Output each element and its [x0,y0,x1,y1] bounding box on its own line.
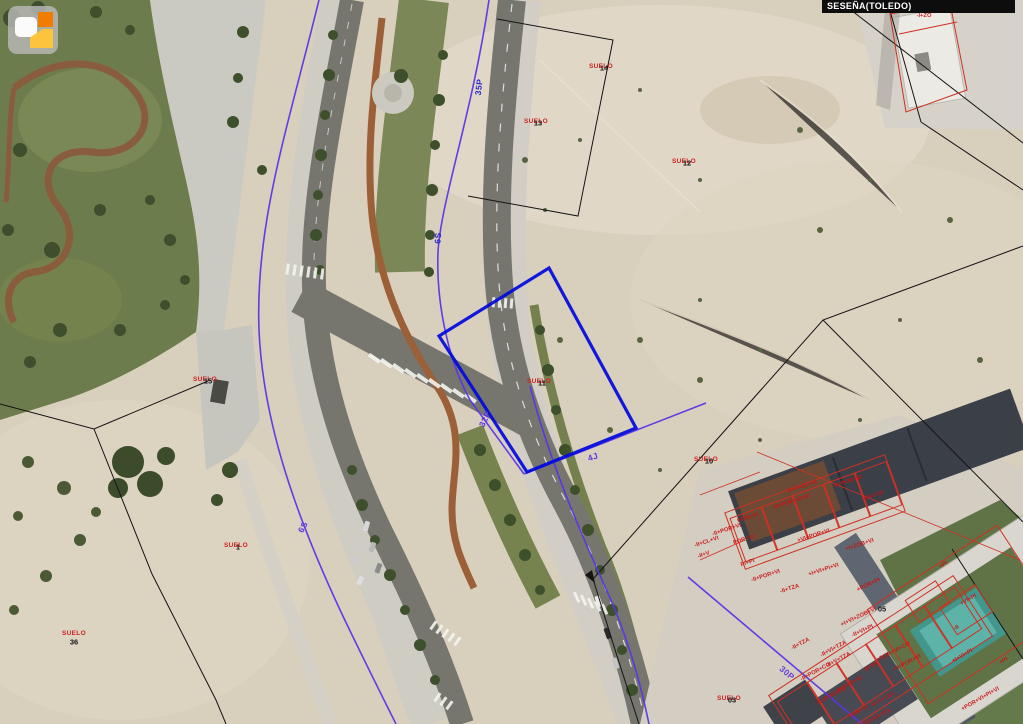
logo-white-square [15,17,37,37]
satellite-map-canvas[interactable] [0,0,1023,724]
municipality-label: SESEÑA(TOLEDO) [822,0,1015,13]
map-viewport[interactable]: 35P6S32P4J6S30P SUELOSUELOSUELOSUELOSUEL… [0,0,1023,724]
logo-orange-square [38,12,53,27]
catastro-layers-logo-icon [8,6,58,54]
